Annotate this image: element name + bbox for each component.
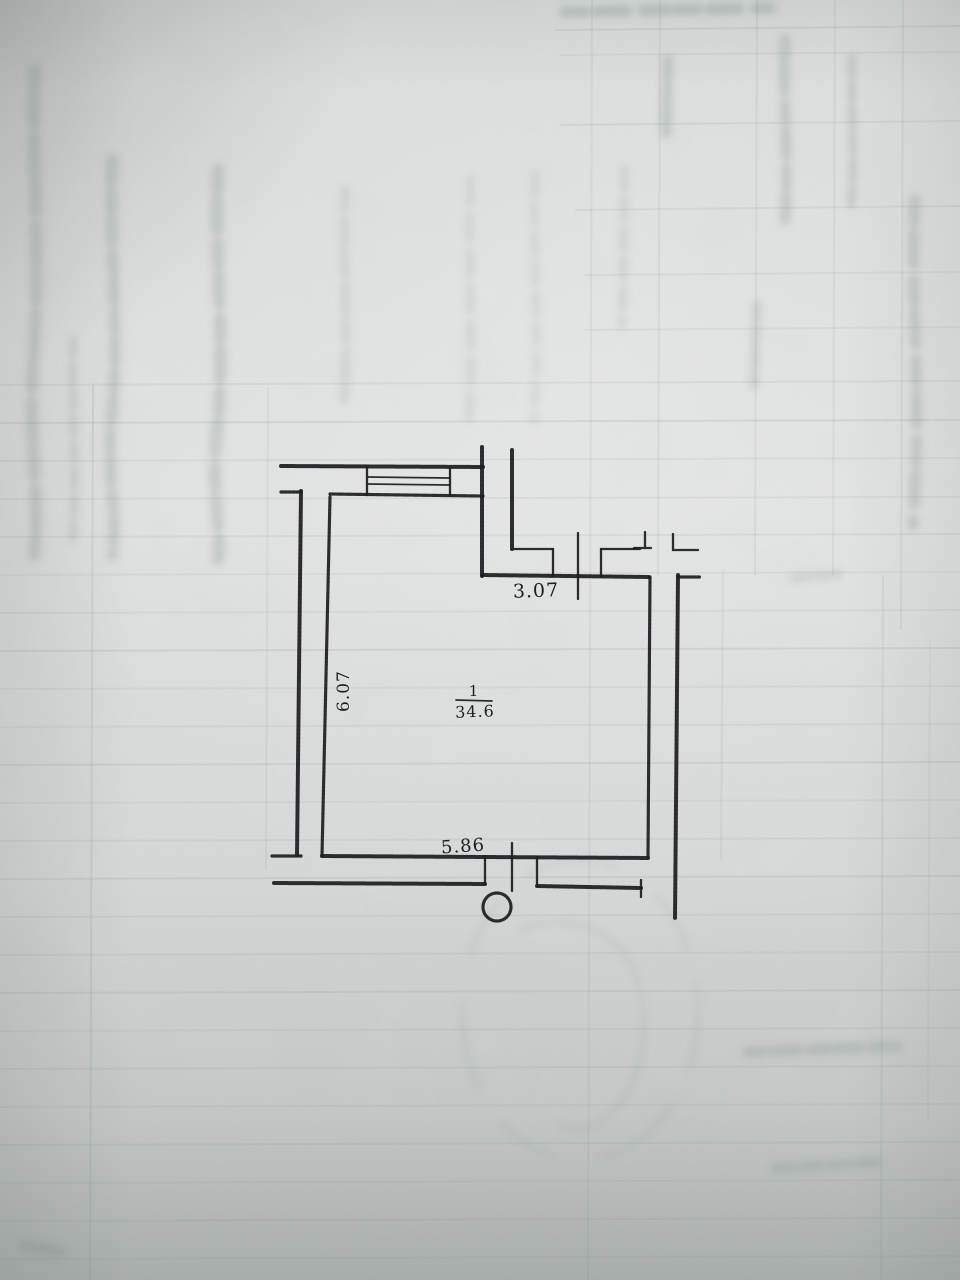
scanned-floor-plan-photo: 3.07 6.07 5.86 1 34.6 (0, 0, 960, 1280)
floor-plan-canvas: 3.07 6.07 5.86 1 34.6 (0, 0, 960, 1280)
paper-grain-texture (0, 0, 960, 1280)
